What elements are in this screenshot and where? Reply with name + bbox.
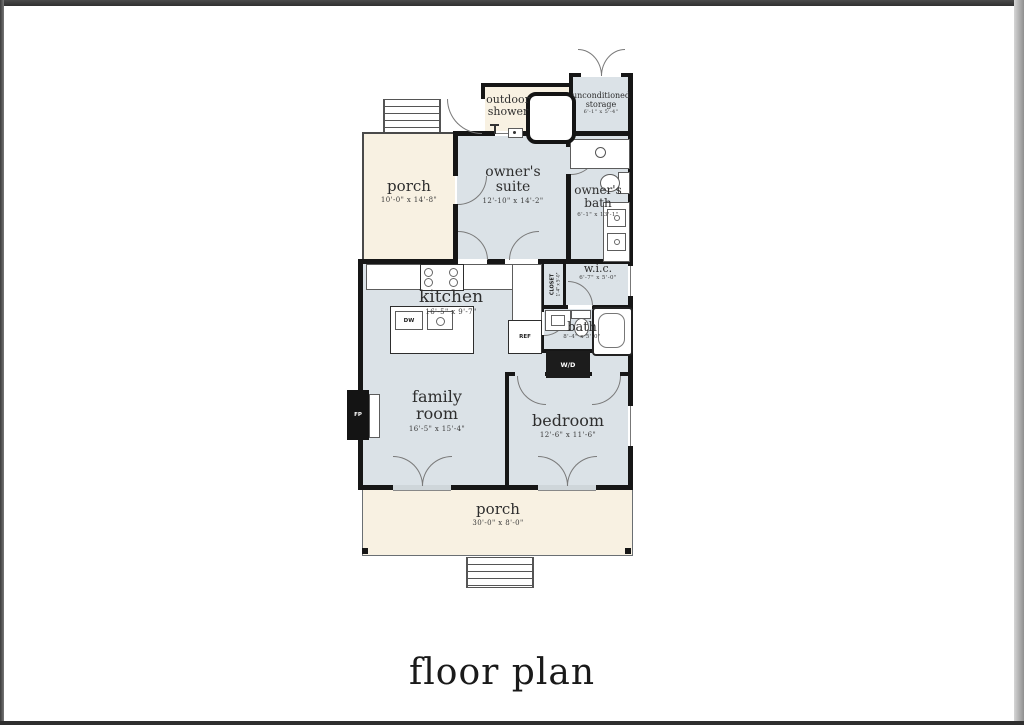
- page-frame-top: [0, 0, 1024, 6]
- family-room-dim: 16'-5" x 15'-4": [409, 426, 465, 434]
- wall: [481, 83, 485, 99]
- owners-bath-label: owner's bath 6'-1" x 13'-1": [574, 184, 622, 219]
- wic-label: w.i.c. 6'-7" x 5'-0": [579, 263, 617, 282]
- lower-porch-name: porch: [476, 500, 520, 518]
- storage-door-right: [601, 49, 625, 76]
- window: [628, 406, 633, 446]
- bath-name: bath: [567, 320, 597, 335]
- closet-dim: 1'-4" x 5'-0": [556, 273, 561, 297]
- washer-dryer: W/D: [546, 351, 590, 378]
- shower-head-icon: [494, 124, 496, 134]
- wall: [358, 259, 363, 490]
- bath-dim: 8'-4" x 5'-0": [563, 335, 601, 341]
- owners-bath-name2: bath: [574, 197, 622, 210]
- dishwasher-label: DW: [404, 318, 415, 324]
- porch-steps-bottom: [466, 557, 534, 588]
- owners-suite-dim: 12'-10" x 14'-2": [483, 198, 544, 206]
- outdoor-tub-icon: [526, 92, 576, 144]
- shower-head-bar-icon: [490, 124, 499, 126]
- family-room-name1: family: [409, 388, 465, 405]
- wall: [540, 305, 568, 309]
- closet-label: CLOSET 1'-4" x 5'-0": [544, 264, 566, 305]
- upper-porch-label: porch 10'-0" x 14'-8": [381, 178, 437, 205]
- family-room-label: family room 16'-5" x 15'-4": [409, 388, 465, 433]
- storage-name2: storage: [572, 101, 630, 110]
- kitchen-dim: 16'-5" x 9'-7": [419, 309, 483, 317]
- storage-dim: 6'-1" x 5'-4": [572, 110, 630, 115]
- upper-porch-name: porch: [387, 177, 431, 195]
- wall: [566, 174, 571, 264]
- hearth-icon: [369, 394, 380, 438]
- upper-porch-dim: 10'-0" x 14'-8": [381, 197, 437, 205]
- bedroom-label: bedroom 12'-6" x 11'-6": [532, 412, 604, 440]
- wall: [620, 372, 633, 376]
- drain-icon: [508, 128, 523, 138]
- wall: [453, 131, 458, 176]
- porch-column: [625, 548, 631, 554]
- wic-name: w.i.c.: [584, 262, 612, 275]
- owners-suite-name1: owner's: [483, 165, 544, 180]
- shower-stall-icon: [570, 139, 630, 169]
- bedroom-dim: 12'-6" x 11'-6": [532, 432, 604, 440]
- fireplace-label: FP: [354, 412, 362, 418]
- wall: [505, 372, 509, 490]
- storage-door-left: [578, 49, 602, 76]
- kitchen-label: kitchen 16'-5" x 9'-7": [419, 288, 483, 317]
- owners-bath-name1: owner's: [574, 184, 622, 197]
- storage-label: unconditioned storage 6'-1" x 5'-4": [572, 92, 630, 116]
- refrigerator-label: REF: [519, 334, 531, 340]
- owners-suite-label: owner's suite 12'-10" x 14'-2": [483, 165, 544, 206]
- wic-dim: 6'-7" x 5'-0": [579, 276, 617, 282]
- page-frame-bottom: [0, 721, 1024, 725]
- page-frame-left: [0, 0, 4, 725]
- kitchen-name: kitchen: [419, 287, 483, 307]
- refrigerator: REF: [508, 320, 542, 354]
- fireplace: FP: [347, 390, 369, 440]
- washer-dryer-label: W/D: [561, 361, 576, 369]
- wall: [481, 83, 573, 87]
- porch-column: [362, 548, 368, 554]
- outdoor-shower-name2: shower: [486, 106, 530, 118]
- outdoor-shower-label: outdoor shower: [486, 94, 530, 118]
- family-room-name2: room: [409, 405, 465, 422]
- lower-porch-dim: 30'-0" x 8'-0": [472, 520, 523, 528]
- owners-bath-dim: 6'-1" x 13'-1": [574, 213, 622, 219]
- vanity-sink-icon: [607, 233, 626, 251]
- bedroom-name: bedroom: [532, 411, 604, 430]
- entry-steps-top: [383, 99, 441, 132]
- page-frame-right: [1014, 0, 1024, 725]
- window: [628, 266, 633, 296]
- lower-porch-label: porch 30'-0" x 8'-0": [472, 501, 523, 528]
- kitchen-counter-right: [512, 264, 542, 322]
- outdoor-shower-door: [447, 99, 482, 134]
- bath-label: bath 8'-4" x 5'-0": [563, 321, 601, 341]
- page-title: floor plan: [352, 652, 652, 693]
- closet-text-wrap: CLOSET 1'-4" x 5'-0": [550, 273, 561, 297]
- owners-suite-name2: suite: [483, 180, 544, 195]
